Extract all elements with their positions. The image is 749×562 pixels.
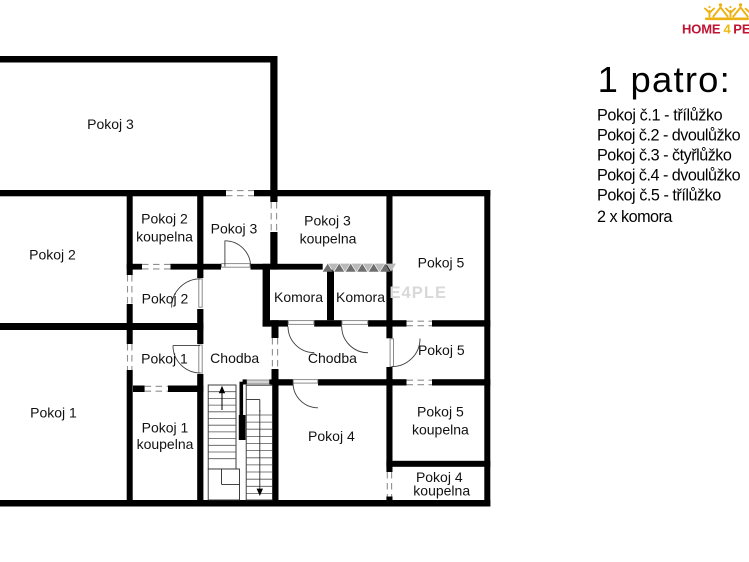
- svg-text:Pokoj 3: Pokoj 3: [87, 116, 134, 132]
- svg-text:Pokoj 3: Pokoj 3: [304, 213, 351, 229]
- svg-text:Pokoj 2: Pokoj 2: [141, 211, 188, 227]
- svg-text:Pokoj 2: Pokoj 2: [29, 247, 76, 263]
- svg-text:Pokoj 1: Pokoj 1: [141, 351, 188, 367]
- svg-text:koupelna: koupelna: [137, 436, 194, 452]
- svg-text:koupelna: koupelna: [412, 422, 469, 438]
- svg-text:Chodba: Chodba: [308, 350, 357, 366]
- svg-text:Pokoj 4: Pokoj 4: [308, 428, 355, 444]
- svg-text:Pokoj č.5 - třílůžko: Pokoj č.5 - třílůžko: [597, 187, 721, 205]
- svg-text:Pokoj 5: Pokoj 5: [418, 255, 465, 271]
- svg-text:HOME: HOME: [682, 22, 721, 37]
- svg-text:Komora: Komora: [274, 289, 323, 305]
- svg-text:Pokoj 5: Pokoj 5: [417, 403, 464, 419]
- svg-text:2 x komora: 2 x komora: [597, 208, 672, 226]
- svg-text:E4PLE: E4PLE: [390, 284, 447, 302]
- svg-text:koupelna: koupelna: [300, 231, 357, 247]
- svg-text:Pokoj č.3 - čtyřlůžko: Pokoj č.3 - čtyřlůžko: [597, 147, 732, 165]
- svg-text:Pokoj 2: Pokoj 2: [142, 291, 189, 307]
- svg-text:Pokoj 1: Pokoj 1: [30, 405, 77, 421]
- svg-text:Pokoj č.1 - třílůžko: Pokoj č.1 - třílůžko: [597, 107, 723, 125]
- svg-text:Komora: Komora: [336, 289, 385, 305]
- svg-text:Pokoj 3: Pokoj 3: [211, 221, 258, 237]
- svg-text:koupelna: koupelna: [136, 229, 193, 245]
- svg-text:Pokoj č.2 - dvoulůžko: Pokoj č.2 - dvoulůžko: [597, 127, 741, 145]
- svg-text:Pokoj 5: Pokoj 5: [418, 342, 465, 358]
- svg-text:1 patro:: 1 patro:: [598, 59, 730, 100]
- svg-text:4: 4: [724, 22, 732, 37]
- svg-text:Pokoj č.4 - dvoulůžko: Pokoj č.4 - dvoulůžko: [597, 167, 741, 185]
- svg-text:Pokoj 1: Pokoj 1: [142, 420, 189, 436]
- svg-text:koupelna: koupelna: [413, 483, 470, 499]
- svg-text:PEOPLE: PEOPLE: [733, 22, 749, 37]
- svg-text:Chodba: Chodba: [210, 350, 259, 366]
